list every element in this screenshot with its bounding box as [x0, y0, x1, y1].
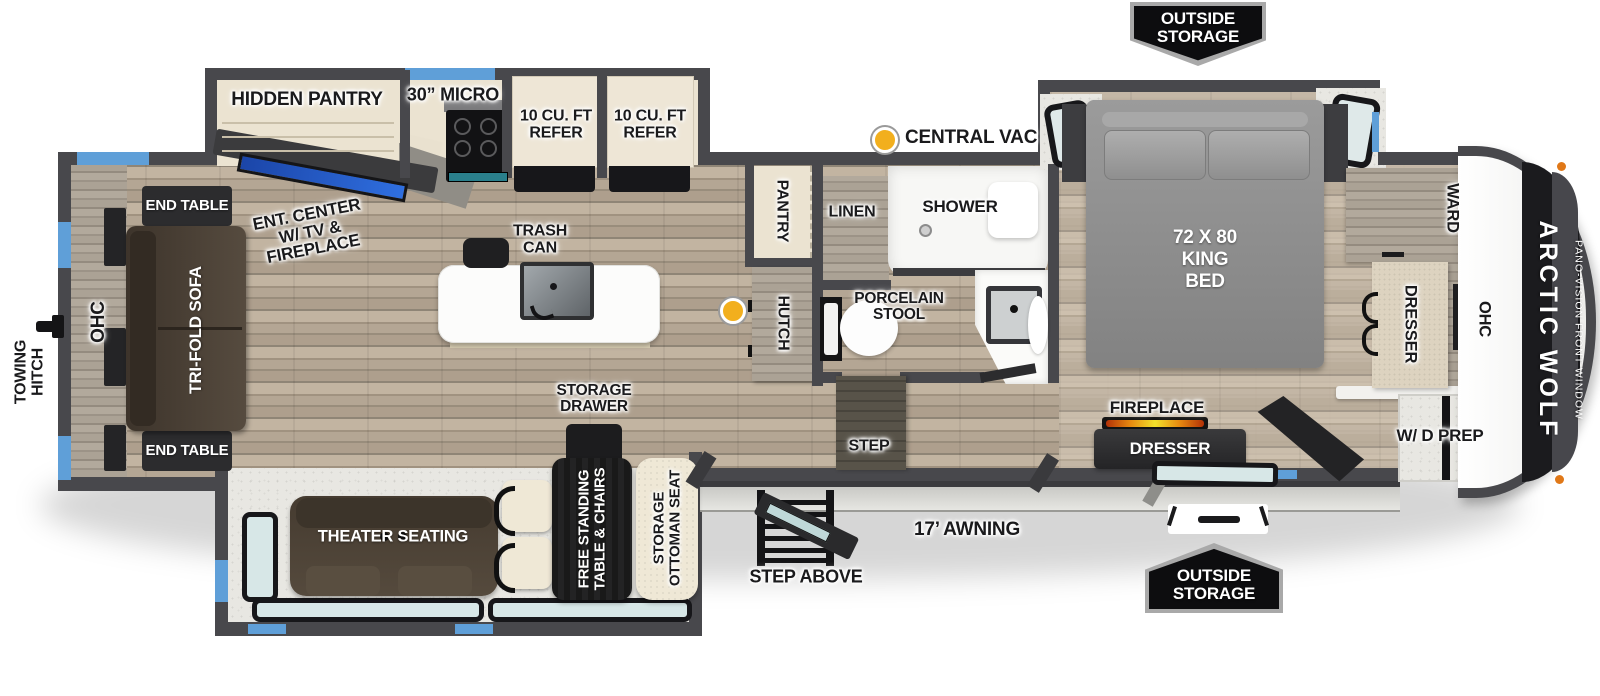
linen-cabinet: [823, 176, 889, 280]
refer-right-front: [609, 166, 690, 192]
theater-seat-back: [296, 498, 492, 528]
end-table-bottom-label: END TABLE: [146, 443, 229, 459]
trash-can: [463, 238, 509, 268]
refer-right-label: 10 CU. FT REFER: [614, 108, 686, 141]
hutch-handle-1: [748, 300, 752, 312]
theater-window-left: [242, 512, 278, 602]
oven-glass: [448, 172, 508, 182]
bed-bolster: [1102, 112, 1308, 127]
pantry-shelf-line-2: [222, 136, 394, 138]
pantry-shelf-line-1: [222, 122, 394, 124]
bath-wall-right: [1048, 164, 1059, 383]
wall-bottom-right: [700, 468, 1475, 481]
brand-label: ARCTIC WOLF: [1535, 221, 1561, 440]
floorplan: ARCTIC WOLF PANO-VISION FRONT WINDOW OUT…: [0, 0, 1600, 696]
end-table-top-label: END TABLE: [146, 198, 229, 214]
theater-window-bottom-1: [252, 598, 484, 622]
ohc-right-label: OHC: [1475, 301, 1492, 337]
central-vac-label: CENTRAL VAC: [905, 128, 1037, 148]
refer-left-label: 10 CU. FT REFER: [520, 108, 592, 141]
dresser-living-label: DRESSER: [1130, 440, 1211, 458]
pantry-hutch-divider: [745, 258, 812, 267]
theater-footrest-1: [306, 566, 380, 596]
marker-light-top: [1557, 162, 1566, 171]
theater-window-bottom-2: [488, 598, 692, 622]
sink-drain: [550, 283, 557, 290]
theater-slide-window-wall-1: [248, 624, 286, 634]
hutch-handle-2: [748, 345, 752, 357]
step-above-label: STEP ABOVE: [749, 568, 862, 587]
step-label: STEP: [849, 439, 890, 456]
bath-wall-bottom-2: [900, 372, 984, 383]
bath-divider: [823, 280, 891, 290]
fireplace-glow: [1106, 420, 1204, 427]
step-column: [836, 376, 906, 470]
toilet-tank-lid: [824, 303, 838, 355]
bed-headboard-right: [1322, 104, 1348, 182]
dresser-bedroom-label: DRESSER: [1401, 285, 1418, 363]
king-bed-label: 72 X 80 KING BED: [1173, 227, 1237, 293]
toilet-label: PORCELAIN STOOL: [854, 291, 943, 323]
ohc-left-slot-1: [104, 208, 126, 266]
fireplace-label: FIREPLACE: [1110, 399, 1205, 417]
trash-can-label: TRASH CAN: [513, 223, 567, 256]
window-top-left: [77, 152, 149, 165]
divider-micro-refer: [502, 70, 512, 178]
sofa-label: TRI-FOLD SOFA: [187, 266, 205, 394]
bed-pillow-right: [1208, 130, 1310, 180]
marker-light-bottom: [1555, 475, 1564, 484]
storage-drawer-label: STORAGE DRAWER: [557, 383, 632, 415]
window-left-1: [58, 222, 71, 268]
wd-prep-label: W/ D PREP: [1397, 427, 1484, 445]
towing-hitch-knob: [52, 315, 64, 338]
outside-storage-badge-top: OUTSIDE STORAGE: [1130, 2, 1266, 66]
step-rung-6: [765, 558, 826, 563]
theater-slide-wall-left: [215, 452, 228, 636]
divider-refer-refer: [597, 70, 607, 178]
shower-label: SHOWER: [922, 198, 997, 216]
window-behind-dresser: [1152, 461, 1278, 487]
step-rung-5: [765, 548, 826, 553]
micro-label: 30” MICRO: [407, 86, 499, 105]
landing-handle: [1198, 516, 1240, 523]
theater-slide-window-wall-2: [455, 624, 493, 634]
awning-band: [700, 481, 1400, 512]
hidden-pantry-label: HIDDEN PANTRY: [231, 90, 383, 110]
window-bedroom-slide-right: [1372, 112, 1379, 152]
bed-headboard-left: [1062, 104, 1086, 182]
pantry-shelf-line-3: [222, 150, 394, 152]
outside-storage-bottom-label: OUTSIDE STORAGE: [1173, 567, 1255, 602]
burner-2: [480, 118, 497, 135]
vanity-faucet: [1010, 305, 1018, 313]
burner-3: [454, 140, 471, 157]
refer-left-front: [514, 166, 595, 192]
central-vac-outlet: [720, 298, 746, 324]
kitchen-slide-window: [405, 68, 495, 80]
towing-hitch-label: TOWING HITCH: [13, 340, 46, 404]
free-standing-label: FREE STANDING TABLE & CHAIRS: [576, 468, 607, 591]
front-window-label: PANO-VISION FRONT WINDOW: [1573, 240, 1584, 420]
wall-bottom-left: [58, 477, 216, 491]
linen-label: LINEN: [828, 205, 875, 222]
outside-storage-badge-top-inner: OUTSIDE STORAGE: [1134, 6, 1262, 62]
wall-top-2: [708, 152, 1040, 165]
central-vac-dot: [872, 127, 898, 153]
burner-4: [480, 140, 497, 157]
pantry-label: PANTRY: [773, 180, 790, 243]
ohc-left-slot-3: [104, 425, 126, 471]
vanity-oval: [1028, 296, 1048, 354]
window-left-2: [58, 436, 71, 480]
theater-footrest-2: [398, 566, 472, 596]
bed-pillow-left: [1104, 130, 1206, 180]
shower-drain: [919, 224, 932, 237]
ward-label: WARD: [1443, 183, 1460, 233]
theater-seating-label: THEATER SEATING: [318, 528, 468, 545]
burner-1: [454, 118, 471, 135]
hutch-label: HUTCH: [774, 296, 791, 351]
storage-ottoman-label: STORAGE OTTOMAN SEAT: [651, 470, 682, 586]
pantry-side-wall: [745, 164, 754, 262]
awning-label: 17’ AWNING: [914, 520, 1020, 540]
ohc-left-label: OHC: [89, 301, 109, 343]
outside-storage-top-label: OUTSIDE STORAGE: [1157, 10, 1239, 45]
sofa-back: [130, 231, 156, 426]
theater-slide-window-left-wall: [215, 560, 228, 602]
ward-handle: [1382, 252, 1404, 257]
